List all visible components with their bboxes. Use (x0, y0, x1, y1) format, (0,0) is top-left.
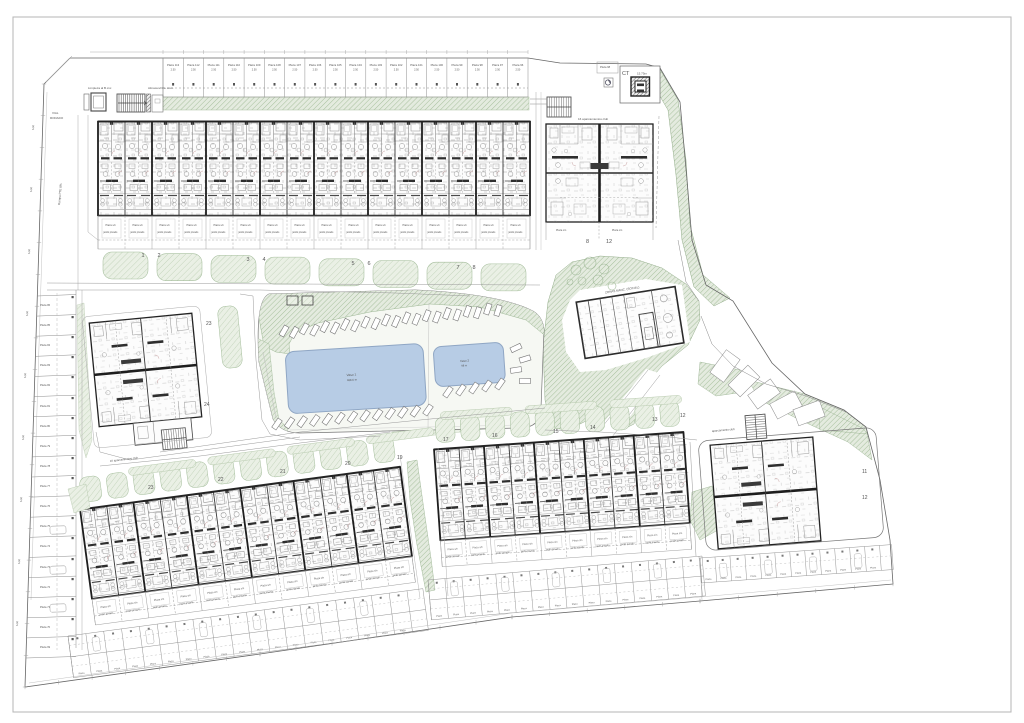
svg-text:Plaza 83: Plaza 83 (40, 363, 51, 367)
svg-text:jardin privado: jardin privado (211, 231, 227, 234)
svg-text:19: 19 (397, 455, 403, 461)
svg-text:Plaza 102: Plaza 102 (390, 63, 403, 67)
svg-text:Plaza 112: Plaza 112 (187, 63, 200, 67)
svg-text:12: 12 (606, 239, 612, 245)
svg-text:Plaza 84: Plaza 84 (40, 343, 51, 347)
svg-text:16 aparcamientos club: 16 aparcamientos club (578, 117, 609, 121)
svg-text:Plaza s/n: Plaza s/n (556, 229, 567, 232)
svg-text:Plaza 98: Plaza 98 (472, 63, 483, 67)
svg-text:Plaza 106: Plaza 106 (309, 63, 322, 67)
svg-text:3: 3 (246, 257, 249, 263)
svg-text:498.6 m: 498.6 m (347, 377, 358, 382)
svg-text:Plaza 103: Plaza 103 (370, 63, 383, 67)
svg-text:jardin privado: jardin privado (373, 231, 389, 234)
svg-text:Plaza 99: Plaza 99 (452, 63, 463, 67)
svg-text:Plaza 111: Plaza 111 (208, 63, 220, 67)
svg-text:Plaza 82: Plaza 82 (40, 383, 51, 387)
svg-text:Plaza 75: Plaza 75 (40, 524, 51, 528)
svg-text:Plaza 71: Plaza 71 (40, 605, 51, 609)
svg-text:22: 22 (218, 477, 224, 483)
svg-text:Plaza 77: Plaza 77 (40, 484, 51, 488)
svg-text:Plaza 107: Plaza 107 (289, 63, 302, 67)
svg-text:Plaza s/n: Plaza s/n (160, 224, 171, 227)
svg-text:13: 13 (652, 417, 658, 423)
svg-text:23: 23 (148, 485, 154, 491)
svg-text:Plaza s/n: Plaza s/n (187, 224, 198, 227)
svg-text:Plaza 76: Plaza 76 (40, 504, 51, 508)
svg-text:Plaza 78: Plaza 78 (40, 464, 51, 468)
svg-text:Plaza 79: Plaza 79 (40, 444, 51, 448)
svg-text:jardin privado: jardin privado (346, 231, 362, 234)
svg-text:Plaza 70: Plaza 70 (40, 625, 51, 629)
svg-text:Plaza s/n: Plaza s/n (295, 224, 306, 227)
svg-text:Plaza s/n: Plaza s/n (268, 224, 279, 227)
svg-text:Plaza 69: Plaza 69 (40, 645, 51, 649)
svg-text:jardin privado: jardin privado (130, 231, 146, 234)
svg-text:Plaza 100: Plaza 100 (431, 63, 444, 67)
svg-text:Plaza 105: Plaza 105 (329, 63, 342, 67)
svg-text:jardin privado: jardin privado (400, 231, 416, 234)
svg-text:12: 12 (862, 495, 868, 501)
svg-text:8: 8 (586, 239, 589, 245)
svg-text:98 m: 98 m (461, 363, 467, 367)
svg-text:Vaso 1: Vaso 1 (346, 373, 356, 378)
svg-text:Plaza s/n: Plaza s/n (511, 224, 522, 227)
svg-text:Plaza s/n: Plaza s/n (612, 229, 623, 232)
svg-text:2.50: 2.50 (211, 69, 216, 72)
svg-text:5.00: 5.00 (27, 248, 31, 254)
svg-text:2.50: 2.50 (434, 69, 439, 72)
svg-text:23: 23 (206, 321, 212, 327)
svg-text:2.50: 2.50 (475, 69, 480, 72)
svg-text:Plaza 101: Plaza 101 (410, 63, 423, 67)
svg-text:jardin privado: jardin privado (454, 231, 470, 234)
svg-text:jardin privado: jardin privado (292, 231, 308, 234)
svg-text:2: 2 (157, 253, 160, 259)
svg-text:6: 6 (367, 261, 370, 267)
svg-text:jardin privado: jardin privado (238, 231, 254, 234)
svg-text:Almacen/ctro. com.: Almacen/ctro. com. (148, 86, 174, 90)
svg-text:Vaso 2: Vaso 2 (460, 358, 470, 363)
svg-text:2.50: 2.50 (292, 69, 297, 72)
svg-text:5.00: 5.00 (31, 124, 35, 130)
svg-text:2.50: 2.50 (313, 69, 318, 72)
svg-text:5.00: 5.00 (21, 434, 25, 440)
svg-text:Plaza 85: Plaza 85 (40, 323, 51, 327)
svg-text:16: 16 (492, 433, 498, 439)
svg-text:Plaza s/n: Plaza s/n (133, 224, 144, 227)
svg-text:jardin privado: jardin privado (481, 231, 497, 234)
svg-text:jardin privado: jardin privado (157, 231, 173, 234)
svg-text:RODADO: RODADO (50, 116, 64, 120)
svg-text:11: 11 (862, 469, 867, 475)
svg-text:2.50: 2.50 (232, 69, 237, 72)
svg-text:5.00: 5.00 (19, 496, 23, 502)
svg-text:2.50: 2.50 (414, 69, 419, 72)
svg-text:2.50: 2.50 (353, 69, 358, 72)
svg-text:Plaza s/n: Plaza s/n (457, 224, 468, 227)
svg-text:jardin privado: jardin privado (184, 231, 200, 234)
svg-text:Plaza 104: Plaza 104 (349, 63, 362, 67)
svg-text:15: 15 (553, 429, 559, 435)
svg-text:5.00: 5.00 (17, 558, 21, 564)
svg-text:jardin privado: jardin privado (265, 231, 281, 234)
svg-text:Plaza 110: Plaza 110 (228, 63, 241, 67)
svg-text:Plaza s/n: Plaza s/n (430, 224, 441, 227)
svg-text:14: 14 (590, 425, 596, 431)
svg-text:2.50: 2.50 (515, 69, 520, 72)
svg-text:Plaza s/n: Plaza s/n (349, 224, 360, 227)
svg-text:Plaza s/n: Plaza s/n (214, 224, 225, 227)
svg-text:Plaza 73: Plaza 73 (40, 565, 51, 569)
svg-text:17: 17 (443, 437, 449, 443)
svg-text:Plaza 72: Plaza 72 (40, 585, 51, 589)
svg-text:Plaza 113: Plaza 113 (167, 63, 180, 67)
svg-text:2.50: 2.50 (333, 69, 338, 72)
svg-text:Plaza 80: Plaza 80 (40, 424, 51, 428)
svg-text:Plaza 96: Plaza 96 (512, 63, 523, 67)
svg-text:Plaza 97: Plaza 97 (492, 63, 503, 67)
svg-text:Limpieza al B.xxx: Limpieza al B.xxx (88, 86, 112, 90)
svg-text:2.50: 2.50 (373, 69, 378, 72)
svg-text:5.00: 5.00 (25, 310, 29, 316)
svg-text:5.00: 5.00 (15, 620, 19, 626)
svg-text:8: 8 (472, 265, 475, 271)
svg-text:2.50: 2.50 (455, 69, 460, 72)
svg-text:12: 12 (680, 413, 686, 419)
svg-text:15.75m: 15.75m (637, 72, 648, 76)
svg-text:24: 24 (204, 402, 210, 408)
svg-text:Plaza 74: Plaza 74 (40, 544, 51, 548)
svg-text:2.50: 2.50 (191, 69, 196, 72)
svg-text:20: 20 (345, 461, 351, 467)
svg-text:5.00: 5.00 (23, 372, 27, 378)
svg-text:Plaza 68: Plaza 68 (600, 65, 611, 69)
svg-text:Plaza 109: Plaza 109 (248, 63, 261, 67)
svg-text:Plaza 108: Plaza 108 (268, 63, 281, 67)
svg-text:CT: CT (622, 71, 630, 77)
svg-text:21: 21 (280, 469, 286, 475)
svg-text:2.50: 2.50 (252, 69, 257, 72)
svg-text:Plaza 86: Plaza 86 (40, 303, 51, 307)
svg-text:Plaza s/n: Plaza s/n (484, 224, 495, 227)
svg-text:jardin privado: jardin privado (319, 231, 335, 234)
svg-text:5.00: 5.00 (29, 186, 33, 192)
svg-text:Plaza s/n: Plaza s/n (322, 224, 333, 227)
svg-text:2.50: 2.50 (272, 69, 277, 72)
svg-text:7: 7 (456, 265, 459, 271)
svg-text:jardin privado: jardin privado (103, 231, 119, 234)
svg-text:VIAL: VIAL (52, 111, 59, 115)
svg-text:Plaza s/n: Plaza s/n (106, 224, 117, 227)
svg-text:2.50: 2.50 (171, 69, 176, 72)
svg-text:5: 5 (351, 261, 354, 267)
svg-text:jardin privado: jardin privado (508, 231, 524, 234)
svg-text:jardin privado: jardin privado (427, 231, 443, 234)
svg-text:Plaza 81: Plaza 81 (40, 404, 51, 408)
svg-text:4: 4 (262, 257, 265, 263)
svg-text:1: 1 (141, 253, 144, 259)
svg-text:Plaza s/n: Plaza s/n (376, 224, 387, 227)
svg-text:2.50: 2.50 (495, 69, 500, 72)
svg-text:Plaza s/n: Plaza s/n (403, 224, 414, 227)
svg-text:Plaza s/n: Plaza s/n (241, 224, 252, 227)
svg-text:2.50: 2.50 (394, 69, 399, 72)
